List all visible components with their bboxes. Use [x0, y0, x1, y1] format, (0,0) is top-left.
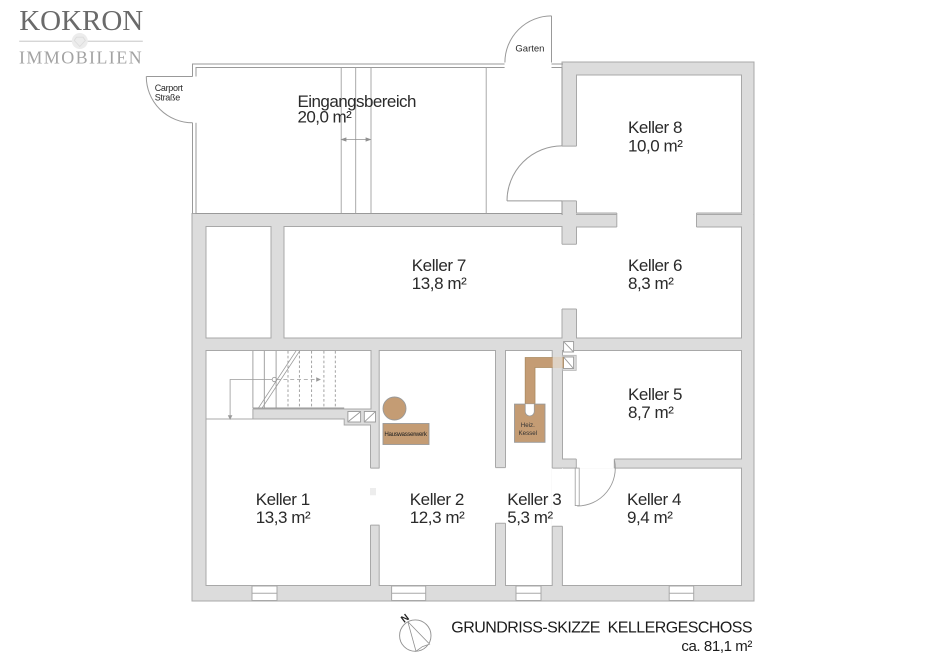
svg-text:Keller 6: Keller 6	[628, 256, 682, 275]
svg-text:Keller 7: Keller 7	[412, 256, 466, 275]
svg-text:Keller 1: Keller 1	[256, 490, 310, 509]
svg-text:IMMOBILIEN: IMMOBILIEN	[19, 47, 143, 67]
svg-text:Carport: Carport	[155, 83, 184, 93]
svg-text:Hauswasserwerk: Hauswasserwerk	[384, 431, 427, 438]
svg-text:ca. 81,1 m²: ca. 81,1 m²	[681, 638, 752, 655]
svg-text:8,7 m²: 8,7 m²	[628, 403, 674, 422]
svg-text:12,3 m²: 12,3 m²	[410, 508, 465, 527]
svg-text:GRUNDRISS-SKIZZE KELLERGESCHO: GRUNDRISS-SKIZZE KELLERGESCHOSS	[451, 620, 752, 637]
svg-text:10,0 m²: 10,0 m²	[628, 136, 683, 155]
svg-text:8,3 m²: 8,3 m²	[628, 274, 674, 293]
svg-text:Straße: Straße	[155, 93, 181, 103]
svg-text:Kessel: Kessel	[519, 430, 538, 437]
svg-text:13,3 m²: 13,3 m²	[256, 508, 311, 527]
svg-text:Keller 2: Keller 2	[410, 490, 464, 509]
svg-text:Keller 5: Keller 5	[628, 385, 682, 404]
svg-text:Keller 3: Keller 3	[507, 490, 561, 509]
svg-text:Keller 8: Keller 8	[628, 118, 682, 137]
svg-text:Heiz.: Heiz.	[521, 422, 535, 429]
svg-text:5,3 m²: 5,3 m²	[507, 508, 553, 527]
svg-text:Garten: Garten	[515, 44, 544, 55]
svg-text:13,8 m²: 13,8 m²	[412, 274, 467, 293]
svg-text:Keller 4: Keller 4	[627, 490, 681, 509]
svg-text:KOKRON: KOKRON	[19, 5, 143, 37]
svg-text:20,0 m²: 20,0 m²	[298, 108, 353, 127]
svg-text:9,4 m²: 9,4 m²	[627, 508, 673, 527]
